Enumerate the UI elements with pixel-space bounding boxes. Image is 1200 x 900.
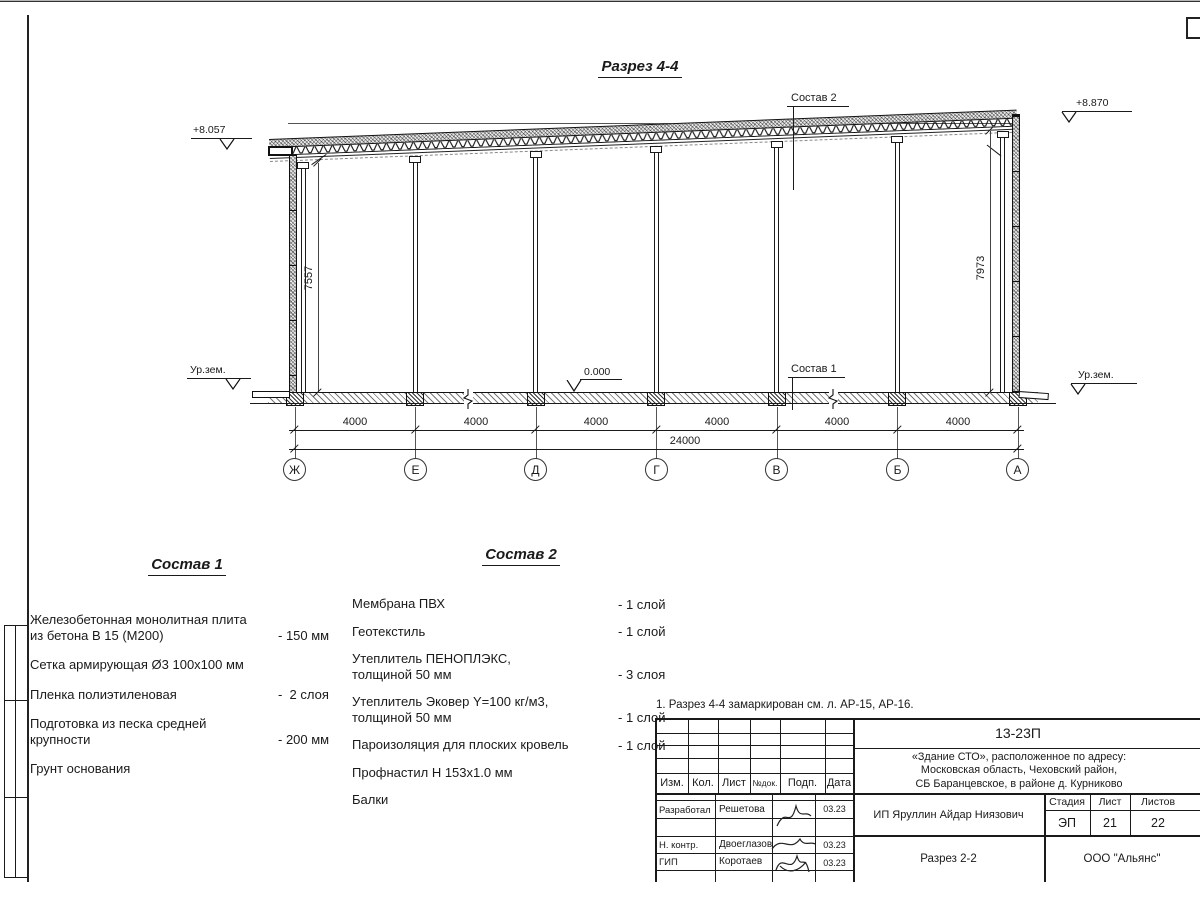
elevation-left: +8.057 bbox=[193, 124, 225, 136]
list-item: Утеплитель Эковер Y=100 кг/м3, толщиной … bbox=[352, 694, 690, 725]
list-item: Балки bbox=[352, 792, 690, 808]
sheet-value: 21 bbox=[1090, 810, 1130, 835]
edge-strip-line bbox=[4, 625, 27, 626]
ground-line bbox=[250, 403, 1056, 404]
tb-line bbox=[655, 733, 853, 734]
axis-bubble: В bbox=[765, 458, 788, 481]
tb-role: Разработал bbox=[659, 805, 711, 816]
item-value: - 150 мм bbox=[278, 628, 344, 643]
roof-assembly bbox=[269, 110, 1017, 165]
tb-col-ndok: №док. bbox=[750, 773, 780, 793]
client-name: ИП Яруллин Айдар Ниязович bbox=[853, 794, 1044, 835]
elevation-zero: 0.000 bbox=[584, 366, 610, 378]
project-code: 13-23П bbox=[853, 718, 1183, 748]
stage-value: ЭП bbox=[1044, 810, 1090, 835]
tb-line bbox=[715, 794, 716, 882]
leader-underline bbox=[788, 377, 845, 378]
composition-1-list: Состав 1 Железобетонная монолитная плита… bbox=[30, 556, 344, 791]
elevation-right: +8.870 bbox=[1076, 97, 1108, 109]
tb-col-podp: Подп. bbox=[780, 773, 825, 793]
drawing-name: Разрез 2-2 bbox=[853, 836, 1044, 881]
leader-line bbox=[792, 377, 793, 410]
tb-line bbox=[655, 853, 853, 854]
right-wall bbox=[1012, 114, 1020, 404]
ext-line bbox=[536, 407, 537, 459]
section-title-text: Разрез 4-4 bbox=[598, 58, 681, 78]
list-item: Сетка армирующая Ø3 100х100 мм bbox=[30, 657, 344, 673]
tb-line bbox=[655, 745, 853, 746]
tb-role: ГИП bbox=[659, 857, 678, 868]
ext-line bbox=[897, 407, 898, 459]
ground-arrow-icon bbox=[1070, 384, 1086, 395]
item-text: Профнастил Н 153х1.0 мм bbox=[352, 765, 513, 781]
signature bbox=[772, 848, 812, 878]
sheets-label: Листов bbox=[1130, 793, 1186, 810]
break-mark bbox=[827, 389, 840, 409]
edge-strip-line bbox=[15, 625, 16, 877]
column-capital bbox=[771, 141, 783, 148]
edge-strip-line bbox=[4, 877, 27, 878]
bay-dim: 4000 bbox=[446, 416, 506, 428]
tb-col-data: Дата bbox=[825, 773, 853, 793]
ext-line bbox=[656, 407, 657, 459]
composition-1-heading: Состав 1 bbox=[30, 556, 344, 576]
item-text: Балки bbox=[352, 792, 388, 808]
column-capital bbox=[530, 151, 542, 158]
column bbox=[654, 153, 659, 393]
tb-role: Н. контр. bbox=[659, 840, 698, 851]
composition-2-list: Состав 2 Мембрана ПВХ - 1 слой Геотексти… bbox=[352, 546, 690, 820]
composition-1-heading-text: Состав 1 bbox=[148, 556, 226, 576]
ground-arrow-icon bbox=[225, 379, 241, 390]
column bbox=[1000, 138, 1005, 393]
ext-line bbox=[777, 407, 778, 459]
section-title: Разрез 4-4 bbox=[565, 58, 715, 78]
axis-label: Е bbox=[411, 463, 419, 477]
ground-level-right: Ур.зем. bbox=[1078, 369, 1114, 381]
bay-dim: 4000 bbox=[807, 416, 867, 428]
column bbox=[413, 163, 418, 393]
axis-label: Ж bbox=[289, 463, 300, 477]
axis-bubble: Е bbox=[404, 458, 427, 481]
item-value: - 200 мм bbox=[278, 732, 344, 747]
elevation-arrow-icon bbox=[219, 139, 235, 150]
item-text: Геотекстиль bbox=[352, 624, 425, 640]
item-text: Грунт основания bbox=[30, 761, 130, 777]
tb-line bbox=[655, 758, 853, 759]
elevation-arrow-icon bbox=[566, 380, 582, 392]
bay-dim: 4000 bbox=[928, 416, 988, 428]
axis-bubble: Д bbox=[524, 458, 547, 481]
elevation-underline bbox=[580, 379, 622, 380]
tb-name: Двоеглазов bbox=[719, 839, 772, 850]
column bbox=[533, 158, 538, 393]
drawing-sheet: Разрез 4-4 bbox=[0, 0, 1200, 900]
axis-label: Д bbox=[531, 463, 539, 477]
drawing-note: 1. Разрез 4-4 замаркирован см. л. АР-15,… bbox=[656, 699, 914, 711]
vert-dim-right: 7973 bbox=[975, 246, 987, 290]
list-item: Подготовка из песка средней крупности - … bbox=[30, 716, 344, 747]
corner-stamp-box bbox=[1186, 17, 1200, 39]
sheet-shadow-line bbox=[0, 0, 1200, 1]
column-capital bbox=[409, 156, 421, 163]
leader-label-sostav1: Состав 1 bbox=[791, 363, 837, 375]
axis-label: Г bbox=[653, 463, 660, 477]
item-text: Утеплитель ПЕНОПЛЭКС, толщиной 50 мм bbox=[352, 651, 511, 682]
ground-underline bbox=[187, 378, 251, 379]
list-item: Пленка полиэтиленовая - 2 слоя bbox=[30, 687, 344, 703]
frame-line-left bbox=[27, 15, 29, 882]
list-item: Профнастил Н 153х1.0 мм bbox=[352, 765, 690, 781]
item-value: - 1 слой bbox=[618, 624, 690, 639]
item-value: - 1 слой bbox=[618, 597, 690, 612]
axis-bubble: Б bbox=[886, 458, 909, 481]
column bbox=[774, 148, 779, 393]
column-capital bbox=[997, 131, 1009, 138]
vert-dim-line bbox=[990, 131, 991, 393]
tb-name: Решетова bbox=[719, 804, 765, 815]
item-text: Пленка полиэтиленовая bbox=[30, 687, 177, 703]
bay-dim: 4000 bbox=[566, 416, 626, 428]
leader-line bbox=[793, 106, 794, 190]
list-item: Мембрана ПВХ - 1 слой bbox=[352, 596, 690, 612]
list-item: Пароизоляция для плоских кровель - 1 сло… bbox=[352, 737, 690, 753]
tb-line bbox=[655, 793, 853, 795]
sheet-label: Лист bbox=[1090, 793, 1130, 810]
tb-name: Коротаев bbox=[719, 856, 762, 867]
break-mark bbox=[462, 389, 475, 409]
sheets-value: 22 bbox=[1130, 810, 1186, 835]
axis-bubble: Г bbox=[645, 458, 668, 481]
column bbox=[895, 143, 900, 393]
item-text: Сетка армирующая Ø3 100х100 мм bbox=[30, 657, 244, 673]
company-name: ООО "Альянс" bbox=[1044, 836, 1200, 881]
tb-col-kol: Кол. bbox=[688, 773, 718, 793]
project-address: «Здание СТО», расположенное по адресу: М… bbox=[853, 749, 1185, 793]
edge-strip-line bbox=[4, 700, 27, 701]
list-item: Железобетонная монолитная плита из бетон… bbox=[30, 612, 344, 643]
item-text: Мембрана ПВХ bbox=[352, 596, 445, 612]
composition-2-heading: Состав 2 bbox=[352, 546, 690, 566]
elevation-arrow-icon bbox=[1061, 112, 1077, 123]
vert-dim-left: 7557 bbox=[303, 256, 315, 300]
edge-strip-line bbox=[4, 797, 27, 798]
left-apron bbox=[252, 391, 290, 398]
axis-bubble: А bbox=[1006, 458, 1029, 481]
axis-label: Б bbox=[894, 463, 902, 477]
axis-label: А bbox=[1013, 463, 1021, 477]
ground-level-left: Ур.зем. bbox=[190, 364, 226, 376]
leader-label-sostav2: Состав 2 bbox=[791, 92, 837, 104]
bay-dim: 4000 bbox=[687, 416, 747, 428]
left-wall bbox=[289, 155, 297, 404]
item-value: - 2 слоя bbox=[278, 687, 344, 702]
ext-line bbox=[415, 407, 416, 459]
item-text: Железобетонная монолитная плита из бетон… bbox=[30, 612, 247, 643]
item-text: Подготовка из песка средней крупности bbox=[30, 716, 206, 747]
list-item: Утеплитель ПЕНОПЛЭКС, толщиной 50 мм - 3… bbox=[352, 651, 690, 682]
tb-date: 03.23 bbox=[816, 855, 853, 871]
dim-line-total bbox=[289, 449, 1024, 450]
stage-label: Стадия bbox=[1044, 793, 1090, 810]
axis-bubble: Ж bbox=[283, 458, 306, 481]
tb-date: 03.23 bbox=[816, 800, 853, 818]
axis-label: В bbox=[772, 463, 780, 477]
item-text: Утеплитель Эковер Y=100 кг/м3, толщиной … bbox=[352, 694, 548, 725]
column-capital bbox=[891, 136, 903, 143]
ext-line bbox=[295, 407, 296, 459]
item-text: Пароизоляция для плоских кровель bbox=[352, 737, 569, 753]
ext-line bbox=[1018, 407, 1019, 459]
tb-line bbox=[655, 818, 853, 819]
column-capital bbox=[297, 162, 309, 169]
tb-col-list: Лист bbox=[718, 773, 750, 793]
tb-date: 03.23 bbox=[816, 837, 853, 853]
column-capital bbox=[650, 146, 662, 153]
list-item: Геотекстиль - 1 слой bbox=[352, 624, 690, 640]
total-dim: 24000 bbox=[655, 435, 715, 447]
vert-dim-line bbox=[318, 163, 319, 393]
item-value: - 3 слоя bbox=[618, 667, 690, 682]
bay-dim: 4000 bbox=[325, 416, 385, 428]
edge-strip-line bbox=[4, 625, 5, 877]
leader-underline bbox=[787, 106, 849, 107]
signature bbox=[774, 798, 814, 834]
composition-2-heading-text: Состав 2 bbox=[482, 546, 560, 566]
tb-col-izm: Изм. bbox=[656, 773, 688, 793]
list-item: Грунт основания bbox=[30, 761, 344, 777]
